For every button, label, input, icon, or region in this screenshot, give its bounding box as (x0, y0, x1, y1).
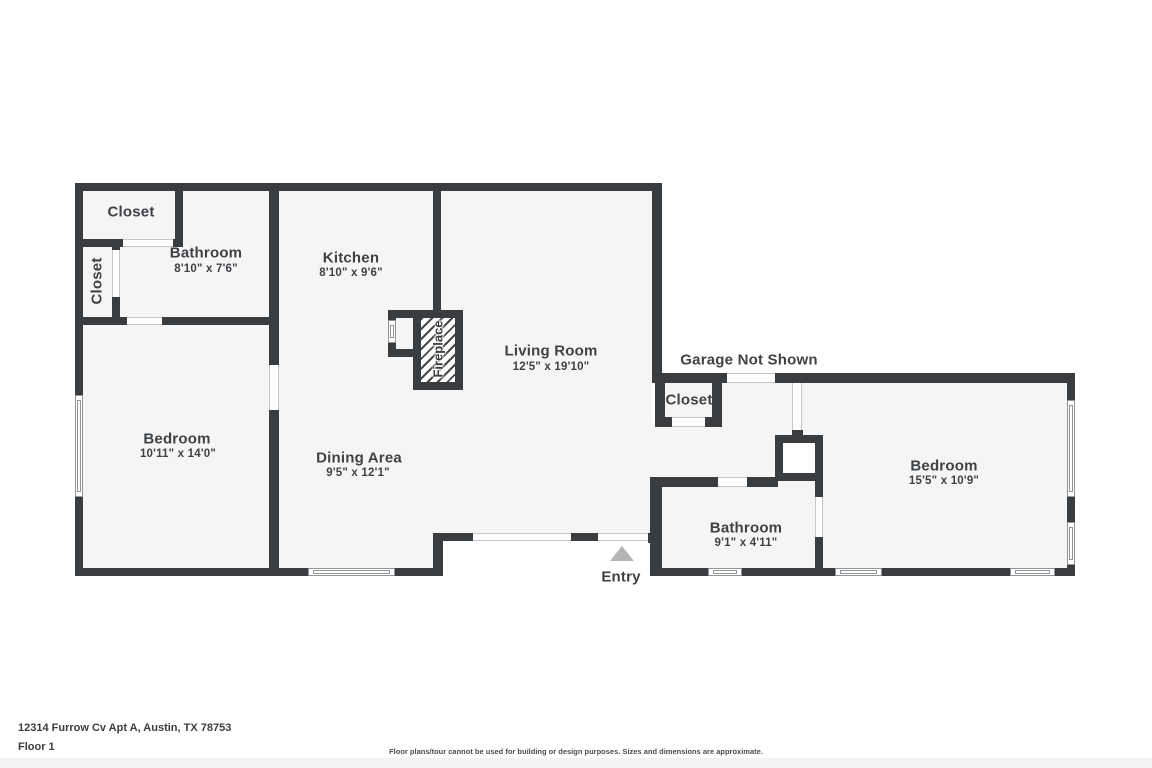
room-label-bathroom1: Bathroom (170, 245, 242, 262)
door-opening (112, 250, 120, 297)
window-symbol (1067, 522, 1075, 565)
room-label-closet-tl: Closet (107, 204, 154, 221)
room-label-bedroom-left: Bedroom (143, 431, 210, 448)
wall (388, 349, 415, 357)
room-dims-kitchen: 8'10" x 9'6" (319, 267, 383, 279)
room-label-bedroom-right: Bedroom (910, 458, 977, 475)
utility-closet-floor (783, 443, 815, 473)
window-symbol (1010, 568, 1055, 576)
fireplace-label: Fireplace (431, 320, 446, 377)
wall (792, 430, 803, 437)
room-dims-dining: 9'5" x 12'1" (326, 467, 390, 479)
room-dims-bedroom-right: 15'5" x 10'9" (909, 475, 979, 487)
entry-label: Entry (601, 569, 640, 586)
disclaimer-text: Floor plans/tour cannot be used for buil… (0, 747, 1152, 756)
room-label-living: Living Room (504, 343, 597, 360)
floor-area-passage (648, 423, 664, 477)
wall (433, 533, 443, 576)
wall (75, 317, 278, 325)
wall (388, 310, 396, 320)
room-dims-living: 12'5" x 19'10" (513, 361, 590, 373)
window-symbol (388, 320, 396, 343)
wall (571, 533, 598, 541)
door-opening (718, 477, 747, 487)
room-label-closet-right: Closet (665, 392, 712, 409)
room-label-closet-left: Closet (89, 257, 106, 304)
wall (650, 477, 778, 487)
entry-door-opening (598, 533, 648, 541)
address-text: 12314 Furrow Cv Apt A, Austin, TX 78753 (18, 722, 231, 734)
room-dims-bathroom1: 8'10" x 7'6" (174, 263, 238, 275)
entry-arrow-icon (610, 546, 634, 561)
window-symbol (75, 395, 83, 497)
wall (652, 183, 662, 383)
door-opening (672, 417, 705, 427)
room-label-bathroom2: Bathroom (710, 520, 782, 537)
window-symbol (1067, 400, 1075, 497)
door-opening (269, 365, 279, 410)
wall (75, 497, 83, 576)
wall (650, 477, 662, 576)
floor-plan: Fireplace Closet Closet Bathroom 8'10" x… (0, 0, 1152, 768)
room-dims-bedroom-left: 10'11" x 14'0" (140, 448, 216, 460)
room-dims-bathroom2: 9'1" x 4'11" (715, 537, 778, 549)
window-symbol (308, 568, 395, 576)
floor-area (83, 191, 443, 568)
door-opening (473, 533, 571, 541)
wall (443, 533, 473, 541)
window-symbol (708, 568, 742, 576)
wall (75, 183, 660, 191)
wall (775, 473, 823, 481)
door-opening (127, 317, 162, 325)
door-opening (123, 239, 173, 247)
room-label-kitchen: Kitchen (323, 250, 379, 267)
door-opening (792, 383, 802, 430)
window-symbol (835, 568, 882, 576)
room-label-dining: Dining Area (316, 450, 402, 467)
door-opening (815, 497, 823, 537)
wall (433, 191, 441, 310)
garage-door-opening (727, 373, 775, 383)
footer-strip (0, 758, 1152, 768)
garage-note-label: Garage Not Shown (680, 352, 817, 369)
wall (75, 191, 83, 395)
wall (655, 373, 1075, 383)
